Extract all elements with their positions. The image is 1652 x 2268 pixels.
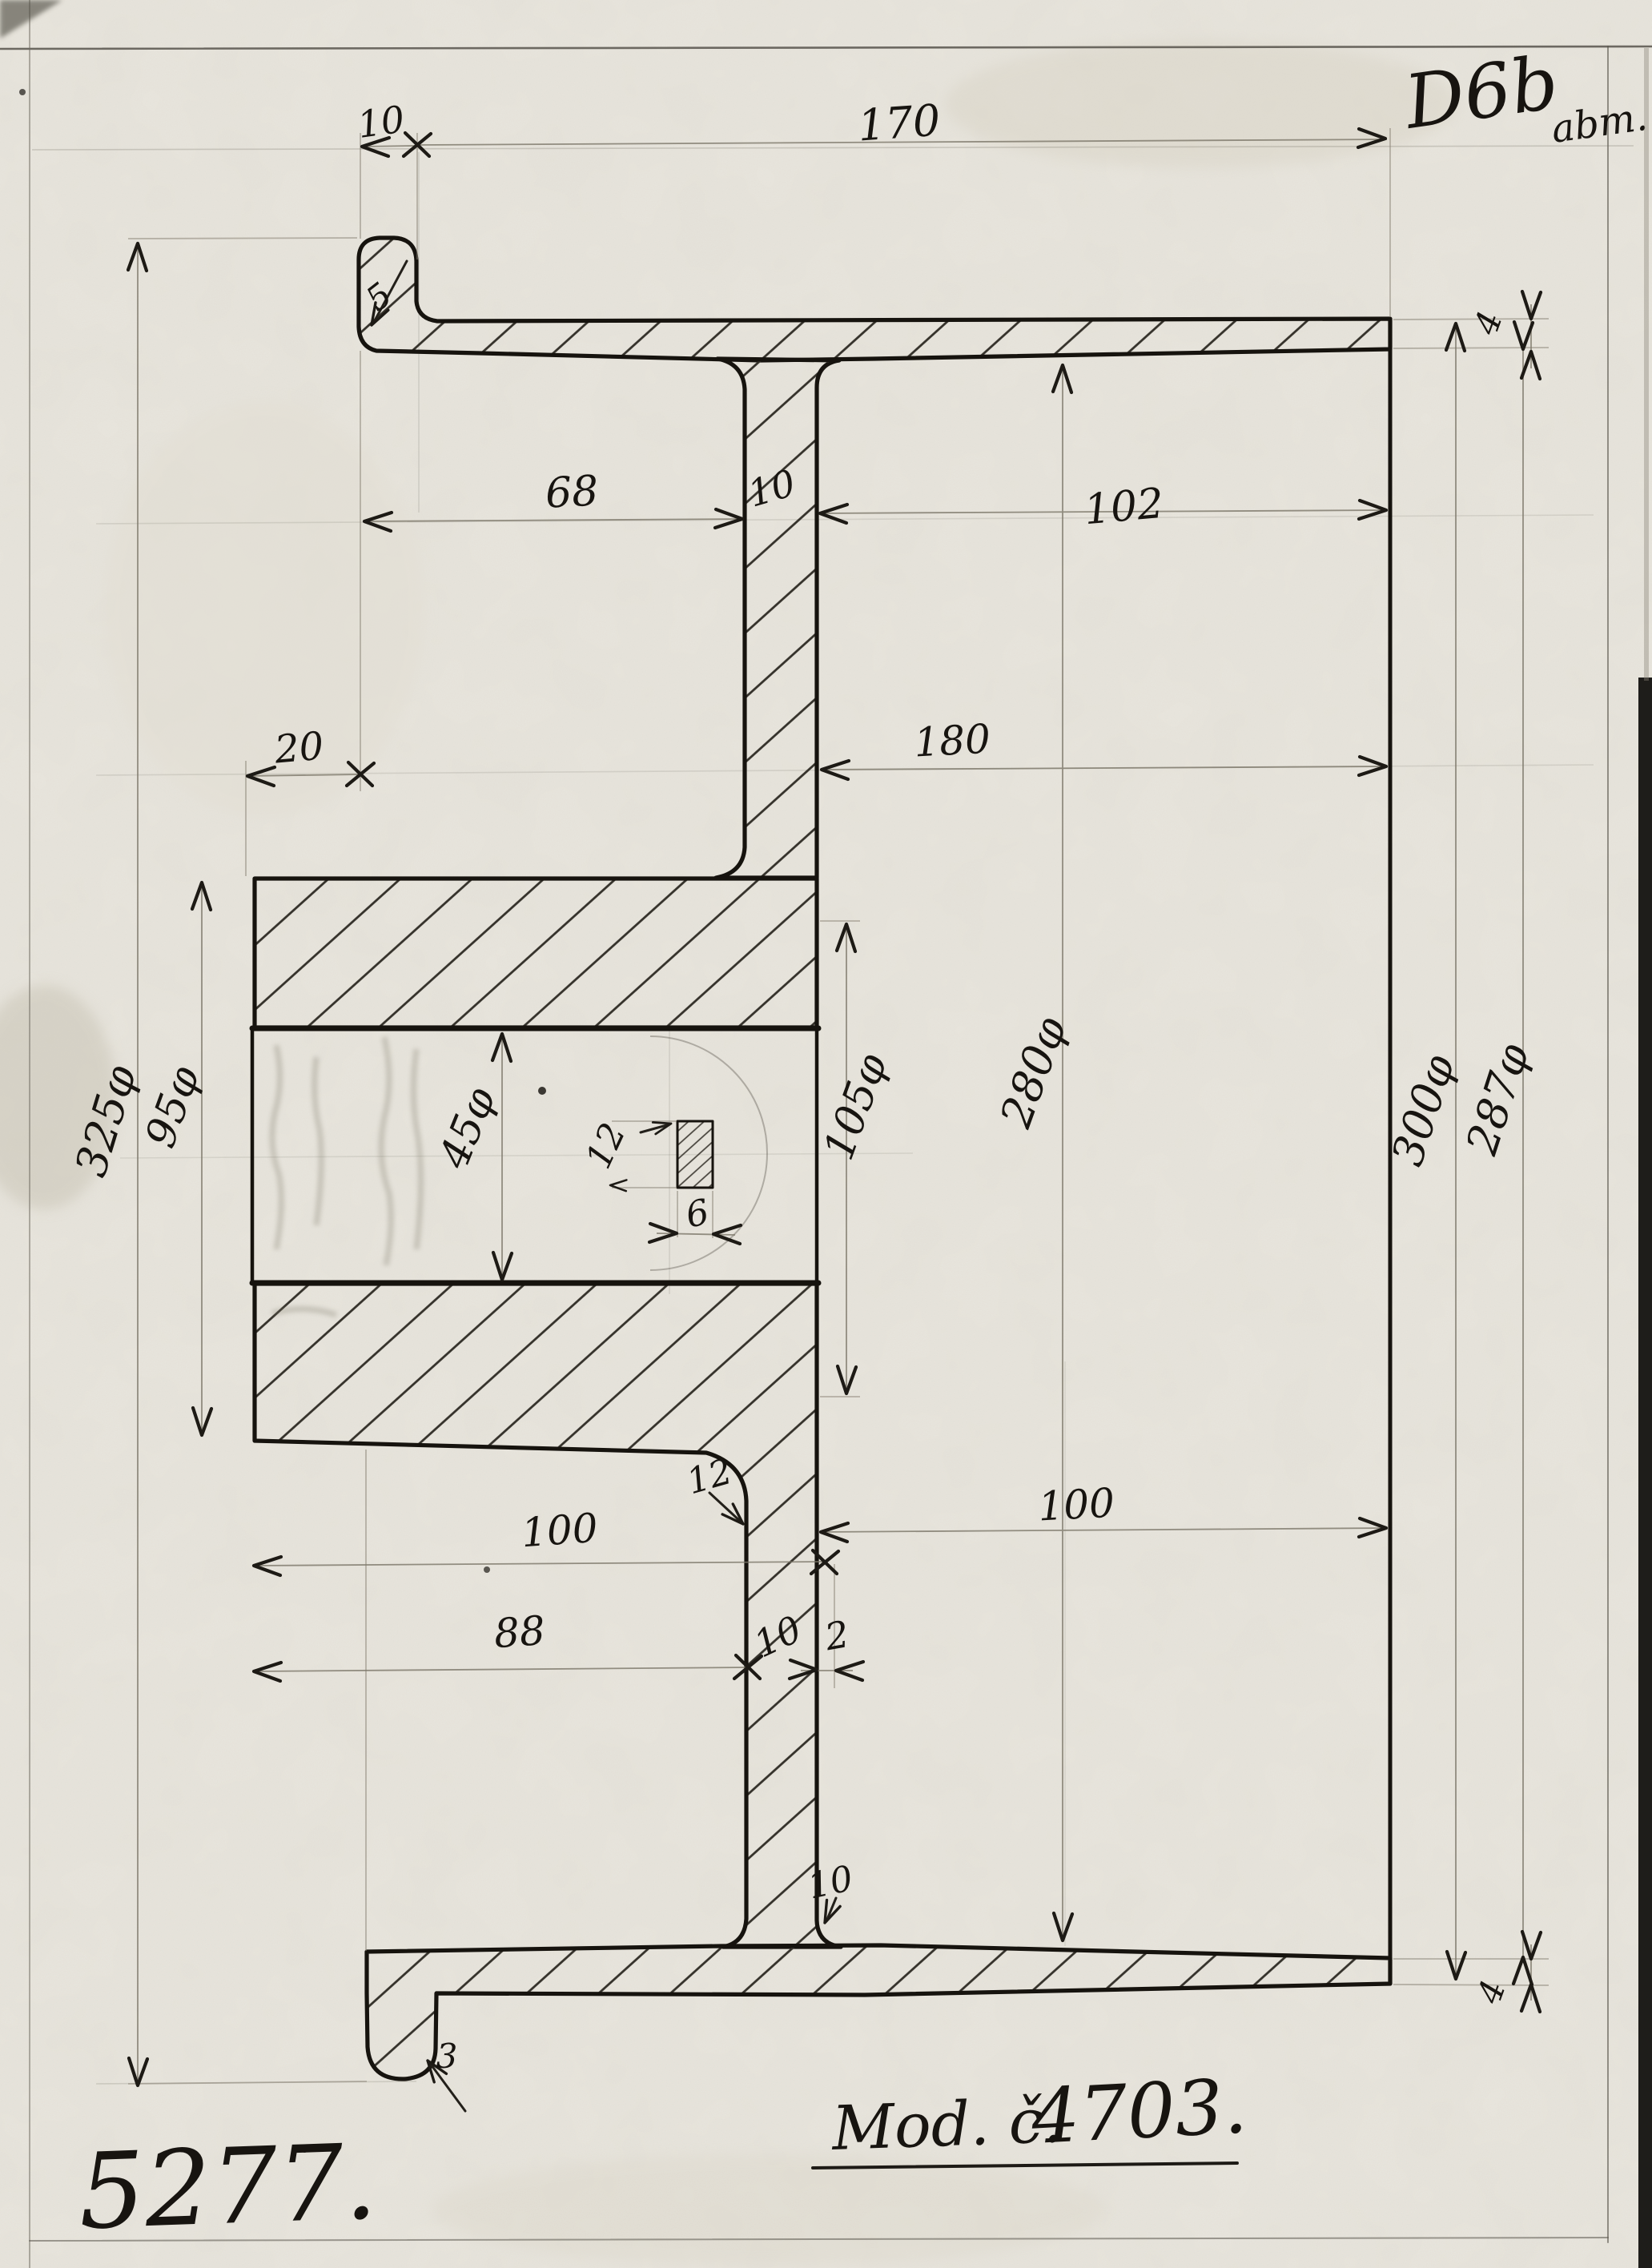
hub-upper-wall	[255, 879, 817, 1027]
dim-hub-to-right-face-lower: 100	[1037, 1480, 1115, 1530]
dim-hub-to-right-face: 180	[913, 716, 991, 766]
dim-overall-width: 170	[856, 95, 942, 151]
dim-web-to-right-face: 102	[1082, 480, 1165, 534]
model-number: 4703.	[1029, 2063, 1249, 2161]
ink-dot	[484, 1566, 490, 1573]
model-prefix: Mod. č.	[830, 2085, 1063, 2164]
scan-edge-faint	[1644, 48, 1649, 681]
dim-hub-to-web-lower: 88	[492, 1607, 547, 1657]
drawing-sheet: 10 170 5 68 10 102 20 180 325φ 95φ 45φ 1…	[0, 0, 1652, 2268]
dim-bottom-lug-fillet-radius: 3	[436, 2037, 458, 2076]
scan-edge-strip	[1638, 678, 1652, 2268]
wheel-section-drawing: 10 170 5 68 10 102 20 180 325φ 95φ 45φ 1…	[0, 0, 1652, 2268]
dim-hub-width: 100	[520, 1505, 599, 1557]
dim-hub-overhang: 20	[272, 724, 326, 773]
drawing-number: 5277.	[77, 2121, 379, 2253]
ink-dot	[19, 89, 26, 95]
ink-dot	[538, 1087, 546, 1095]
dim-top-lip-width: 10	[355, 97, 407, 147]
keyway	[677, 1121, 713, 1188]
dim-flange-left-to-web: 68	[544, 467, 599, 517]
